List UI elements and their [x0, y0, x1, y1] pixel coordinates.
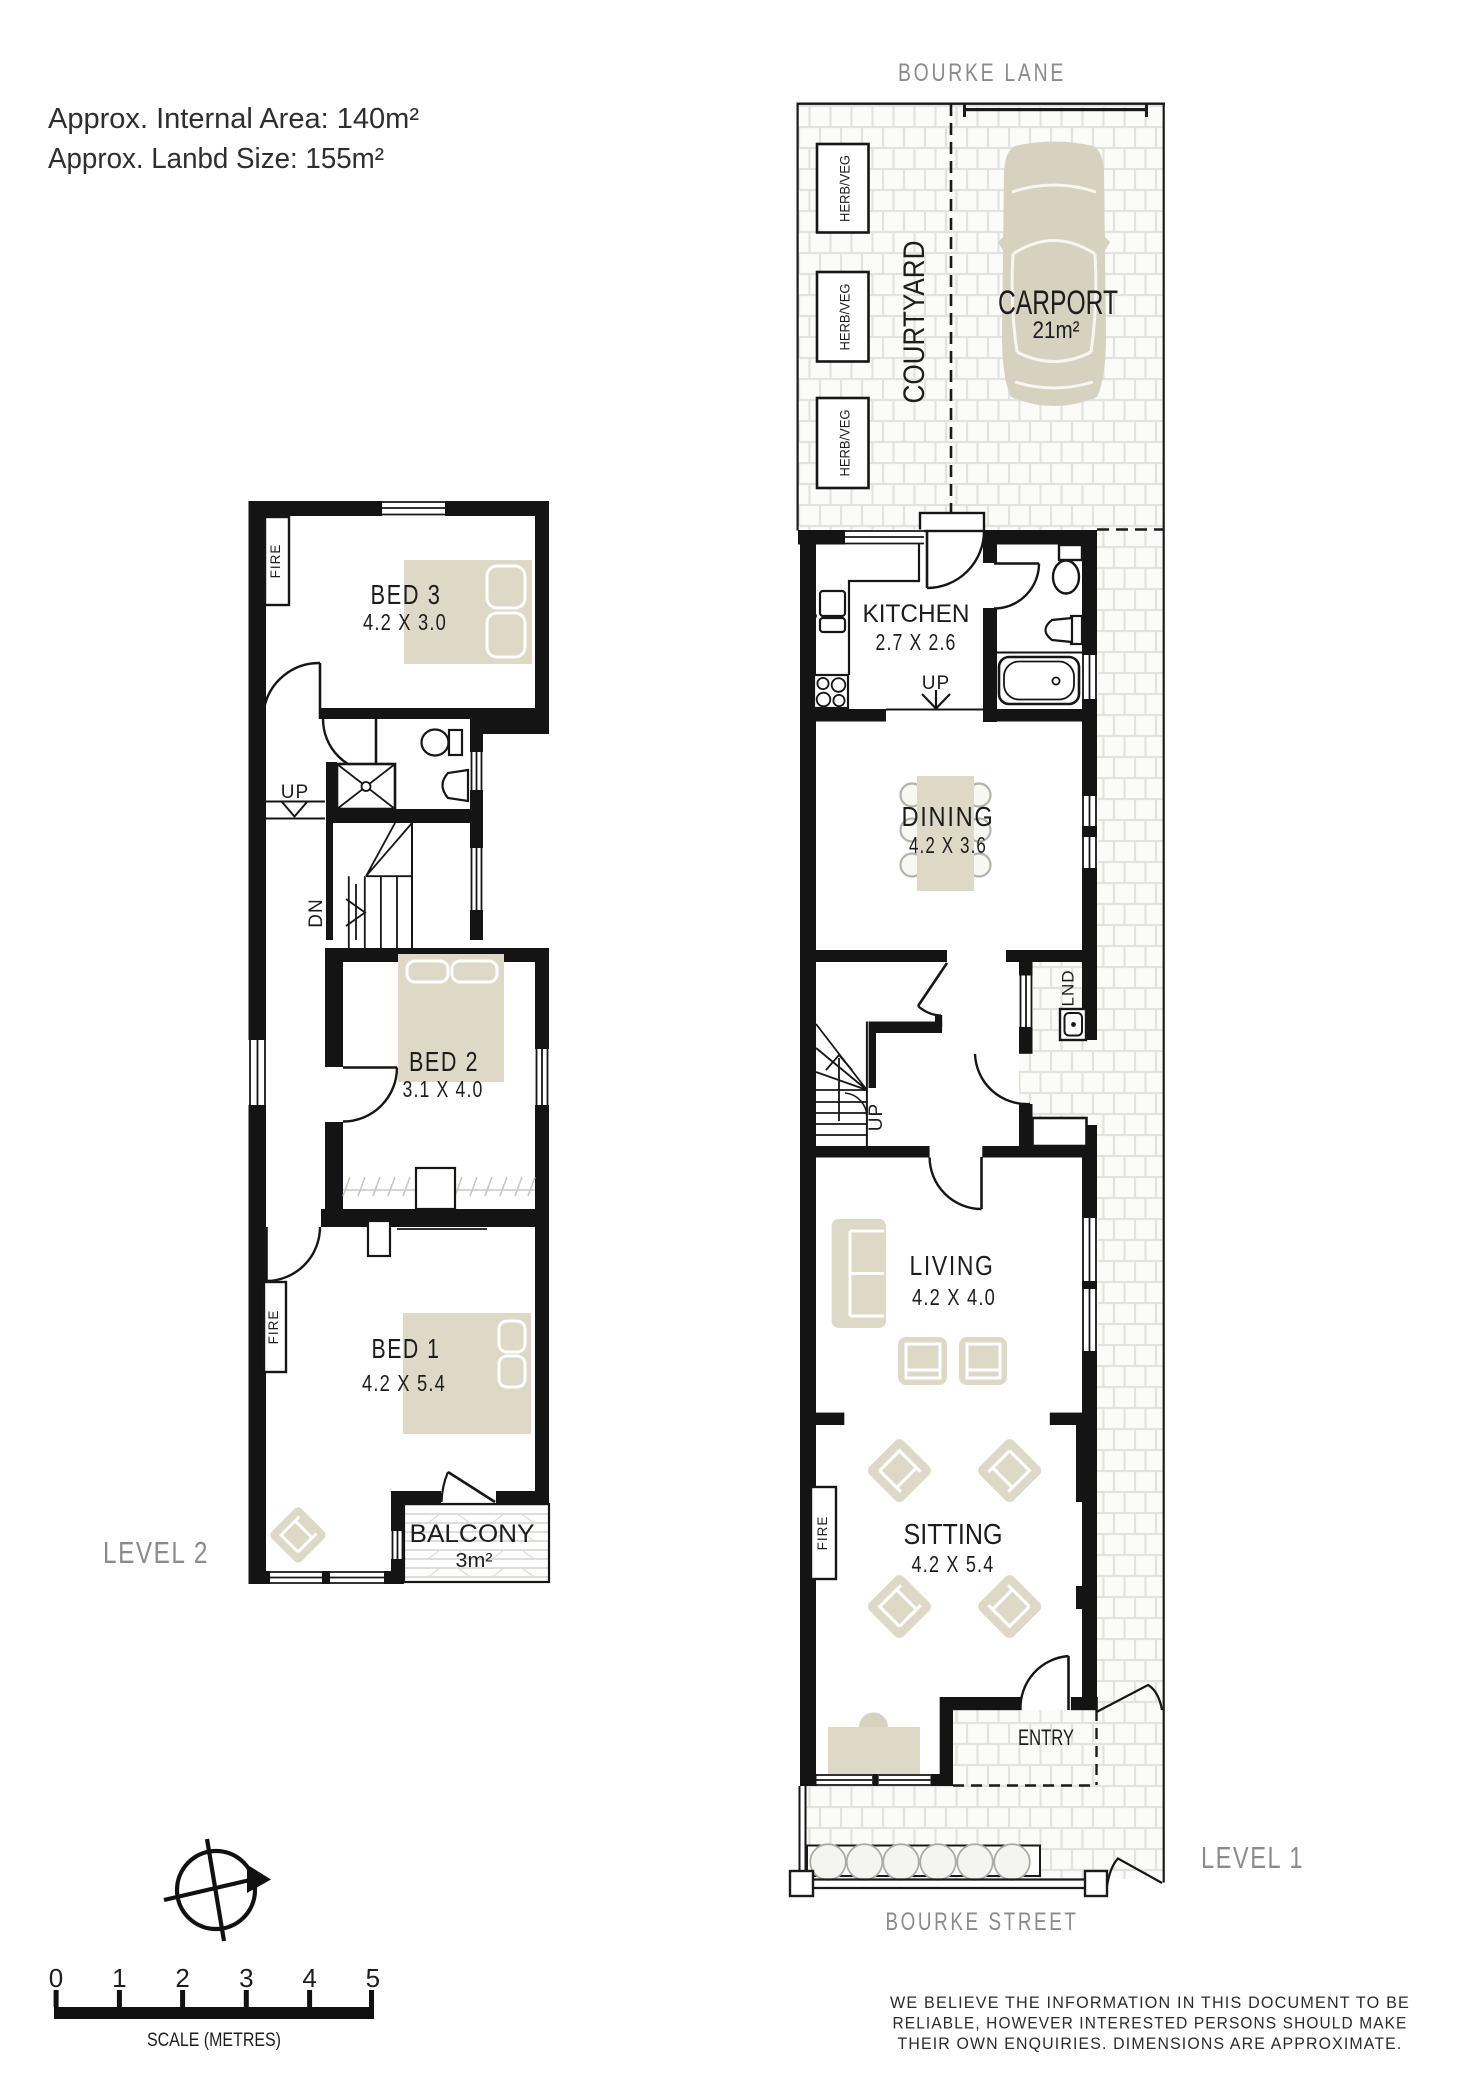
svg-text:BOURKE LANE: BOURKE LANE — [898, 59, 1066, 87]
svg-text:DINING: DINING — [902, 801, 995, 832]
svg-text:Approx. Internal Area: 140m²: Approx. Internal Area: 140m² — [48, 103, 419, 135]
svg-text:2.7 X 2.6: 2.7 X 2.6 — [876, 629, 957, 655]
svg-text:FIRE: FIRE — [268, 544, 283, 579]
svg-text:THEIR OWN ENQUIRIES. DIMENSION: THEIR OWN ENQUIRIES. DIMENSIONS ARE APPR… — [898, 2035, 1403, 2053]
svg-text:ENTRY: ENTRY — [1018, 1725, 1074, 1750]
svg-text:Approx. Lanbd Size: 155m²: Approx. Lanbd Size: 155m² — [48, 143, 384, 175]
svg-text:LEVEL 1: LEVEL 1 — [1201, 1840, 1304, 1875]
svg-text:SITTING: SITTING — [904, 1519, 1003, 1551]
svg-text:BED 1: BED 1 — [372, 1333, 441, 1364]
svg-text:HERB/VEG: HERB/VEG — [838, 410, 853, 477]
svg-text:COURTYARD: COURTYARD — [898, 241, 931, 404]
svg-text:LIVING: LIVING — [910, 1250, 995, 1281]
svg-text:WE BELIEVE THE INFORMATION IN: WE BELIEVE THE INFORMATION IN THIS DOCUM… — [890, 1994, 1410, 2012]
svg-text:DN: DN — [306, 898, 327, 927]
svg-text:3m²: 3m² — [456, 1550, 493, 1572]
svg-text:BED 3: BED 3 — [371, 579, 442, 610]
svg-text:LND: LND — [1059, 969, 1078, 1006]
svg-text:4.2 X 5.4: 4.2 X 5.4 — [362, 1370, 446, 1396]
svg-text:4: 4 — [302, 1963, 316, 1993]
svg-text:21m²: 21m² — [1033, 317, 1080, 344]
svg-text:RELIABLE, HOWEVER INTERESTED P: RELIABLE, HOWEVER INTERESTED PERSONS SHO… — [893, 2015, 1408, 2033]
svg-text:4.2 X 3.0: 4.2 X 3.0 — [363, 609, 447, 635]
svg-text:UP: UP — [866, 1103, 887, 1131]
svg-text:BED 2: BED 2 — [409, 1046, 479, 1077]
svg-text:FIRE: FIRE — [815, 1516, 830, 1551]
svg-text:4.2 X 3.6: 4.2 X 3.6 — [909, 832, 987, 858]
svg-text:UP: UP — [922, 673, 950, 694]
svg-text:BOURKE STREET: BOURKE STREET — [886, 1908, 1079, 1936]
svg-text:HERB/VEG: HERB/VEG — [838, 284, 853, 351]
svg-text:UP: UP — [281, 782, 309, 803]
svg-text:5: 5 — [366, 1963, 380, 1993]
svg-text:SCALE (METRES): SCALE (METRES) — [147, 2029, 281, 2051]
svg-text:1: 1 — [112, 1963, 126, 1993]
svg-text:3: 3 — [239, 1963, 253, 1993]
svg-text:3.1 X 4.0: 3.1 X 4.0 — [403, 1076, 484, 1102]
svg-text:LEVEL 2: LEVEL 2 — [103, 1535, 209, 1570]
svg-text:FIRE: FIRE — [266, 1310, 281, 1345]
svg-text:0: 0 — [49, 1963, 63, 1993]
svg-text:4.2 X 5.4: 4.2 X 5.4 — [912, 1551, 995, 1577]
svg-text:2: 2 — [175, 1963, 189, 1993]
svg-text:KITCHEN: KITCHEN — [863, 600, 970, 628]
svg-text:4.2 X 4.0: 4.2 X 4.0 — [912, 1284, 996, 1310]
svg-text:HERB/VEG: HERB/VEG — [838, 155, 853, 222]
svg-text:BALCONY: BALCONY — [410, 1520, 535, 1548]
